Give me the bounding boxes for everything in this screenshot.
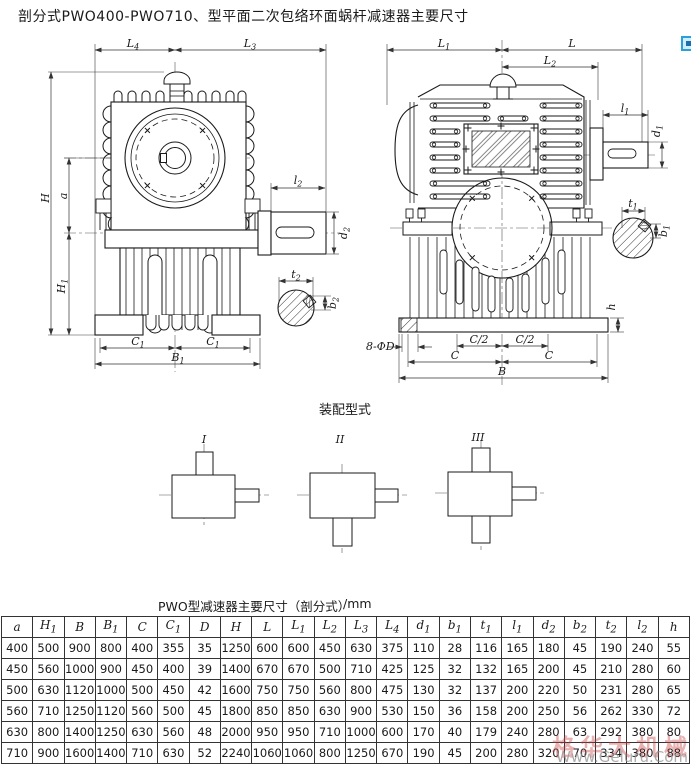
table-cell: 179 (470, 722, 501, 743)
table-cell: 500 (127, 680, 158, 701)
table-cell: 560 (158, 722, 189, 743)
table-cell: 280 (627, 680, 658, 701)
table-cell: 28 (439, 638, 470, 659)
table-cell: 710 (33, 701, 64, 722)
dim-label-L1: L1 (437, 37, 450, 52)
table-cell: 1060 (252, 743, 283, 764)
table-cell: 210 (596, 659, 627, 680)
table-cell: 400 (127, 638, 158, 659)
dim-label-C-left: C (451, 349, 460, 362)
table-row: 4005009008004003553512506006004506303751… (2, 638, 690, 659)
table-cell: 334 (596, 743, 627, 764)
table-cell: 165 (502, 659, 533, 680)
table-cell: 450 (314, 638, 345, 659)
table-cell: 1250 (220, 638, 251, 659)
table-row: 5607101250112056050045180085085063090053… (2, 701, 690, 722)
table-row: 6308001400125063056048200095095071010006… (2, 722, 690, 743)
table-cell: 137 (470, 680, 501, 701)
dim-label-a: a (57, 193, 70, 200)
table-cell: 72 (658, 701, 689, 722)
table-cell: 200 (533, 659, 564, 680)
table-cell: 560 (2, 701, 33, 722)
table-cell: 800 (314, 743, 345, 764)
column-header: H (220, 617, 251, 638)
table-cell: 560 (127, 701, 158, 722)
dim-label-b1: b1 (657, 225, 672, 237)
table-cell: 36 (439, 701, 470, 722)
table-cell: 900 (33, 743, 64, 764)
table-cell: 1060 (283, 743, 314, 764)
table-cell: 425 (377, 659, 408, 680)
table-cell: 56 (564, 701, 595, 722)
column-header: b2 (564, 617, 595, 638)
table-cell: 500 (2, 680, 33, 701)
table-cell: 630 (345, 638, 376, 659)
table-cell: 380 (627, 743, 658, 764)
table-cell: 45 (189, 701, 220, 722)
dim-label-C-right: C (545, 349, 554, 362)
table-cell: 190 (408, 743, 439, 764)
table-cell: 32 (439, 659, 470, 680)
table-cell: 450 (127, 659, 158, 680)
dim-label-t1: t1 (628, 197, 638, 212)
assembly-label-3: III (470, 431, 485, 444)
column-header: d1 (408, 617, 439, 638)
column-header: L1 (283, 617, 314, 638)
table-cell: 1000 (95, 680, 126, 701)
assembly-type-1 (172, 452, 259, 518)
dim-label-C1-right: C1 (206, 335, 220, 350)
table-header-row: aH1BB1CC1DHLL1L2L3L4d1b1t1l1d2b2t2l2h (2, 617, 690, 638)
column-header: L4 (377, 617, 408, 638)
technical-drawings: L4 L3 l2 H a H1 d2 t2 b2 C1 C1 B1 (0, 30, 691, 590)
dim-label-L2: L2 (543, 54, 556, 69)
assembly-title: 装配型式 (319, 403, 371, 418)
dim-label-C-half-right: C/2 (515, 333, 534, 346)
table-cell: 88 (658, 743, 689, 764)
dim-label-C1-left: C1 (131, 335, 145, 350)
table-cell: 45 (564, 659, 595, 680)
table-cell: 600 (377, 722, 408, 743)
table-cell: 1250 (64, 701, 95, 722)
table-cell: 375 (377, 638, 408, 659)
inspection-window (463, 123, 540, 176)
table-cell: 132 (470, 659, 501, 680)
table-cell: 850 (283, 701, 314, 722)
table-cell: 32 (439, 680, 470, 701)
table-cell: 800 (33, 722, 64, 743)
table-cell: 630 (127, 722, 158, 743)
front-output-shaft (258, 211, 326, 255)
table-cell: 63 (564, 722, 595, 743)
table-cell: 600 (283, 638, 314, 659)
dim-label-d2: d2 (337, 227, 352, 239)
table-cell: 560 (314, 680, 345, 701)
side-view-drawing: L1 L L2 l1 d1 t1 b1 8-ΦD C/2 C/2 C C B h (366, 37, 672, 385)
table-cell: 950 (283, 722, 314, 743)
table-cell: 1250 (95, 722, 126, 743)
side-split-joint (403, 209, 602, 235)
table-cell: 500 (33, 638, 64, 659)
front-foot-left (95, 315, 143, 335)
column-header: h (658, 617, 689, 638)
dim-label-H1: H1 (55, 279, 70, 295)
table-cell: 70 (564, 743, 595, 764)
table-cell: 355 (158, 638, 189, 659)
table-cell: 2240 (220, 743, 251, 764)
table-cell: 130 (408, 680, 439, 701)
table-cell: 500 (314, 659, 345, 680)
front-lower-housing (95, 248, 260, 335)
table-cell: 280 (627, 659, 658, 680)
dim-label-L: L (567, 37, 575, 50)
table-cell: 1400 (64, 722, 95, 743)
column-header: d2 (533, 617, 564, 638)
assembly-label-1: I (201, 433, 207, 446)
table-cell: 900 (345, 701, 376, 722)
table-cell: 400 (158, 659, 189, 680)
table-cell: 1000 (64, 659, 95, 680)
column-header: L (252, 617, 283, 638)
table-unit: /mm (343, 596, 372, 611)
table-cell: 1400 (95, 743, 126, 764)
table-cell: 262 (596, 701, 627, 722)
assembly-type-3 (448, 448, 536, 543)
page-title: 剖分式PWO400-PWO710、型平面二次包络环面蜗杆减速器主要尺寸 (18, 6, 469, 26)
table-cell: 850 (252, 701, 283, 722)
side-input-shaft (590, 128, 648, 180)
table-cell: 1600 (220, 680, 251, 701)
dim-label-l1: l1 (621, 102, 630, 117)
table-cell: 125 (408, 659, 439, 680)
dimension-table: aH1BB1CC1DHLL1L2L3L4d1b1t1l1d2b2t2l2h400… (1, 616, 690, 764)
table-cell: 60 (658, 659, 689, 680)
table-row: 5006301120100050045042160075075056080047… (2, 680, 690, 701)
table-cell: 630 (158, 743, 189, 764)
table-cell: 1250 (345, 743, 376, 764)
table-cell: 475 (377, 680, 408, 701)
front-hanging-fins (146, 315, 208, 330)
table-cell: 670 (283, 659, 314, 680)
shaft-section-d1 (613, 218, 653, 258)
table-cell: 170 (408, 722, 439, 743)
table-cell: 240 (502, 722, 533, 743)
table-cell: 710 (2, 743, 33, 764)
table-cell: 110 (408, 638, 439, 659)
table-cell: 330 (627, 701, 658, 722)
table-cell: 1800 (220, 701, 251, 722)
table-cell: 80 (658, 722, 689, 743)
table-cell: 950 (252, 722, 283, 743)
table-cell: 670 (252, 659, 283, 680)
column-header: B (64, 617, 95, 638)
column-header: b1 (439, 617, 470, 638)
dim-label-B1: B1 (170, 351, 184, 366)
front-foot-right (212, 315, 260, 335)
table-cell: 190 (596, 638, 627, 659)
table-cell: 2000 (220, 722, 251, 743)
assembly-type-2 (310, 473, 398, 546)
dim-label-l2: l2 (294, 174, 303, 189)
dim-label-C-half-left: C/2 (469, 333, 488, 346)
table-cell: 1400 (220, 659, 251, 680)
dim-label-L3: L3 (243, 37, 256, 52)
vent-cap (164, 72, 190, 102)
dim-label-bolt-holes: 8-ΦD (366, 340, 395, 353)
column-header: t2 (596, 617, 627, 638)
table-cell: 710 (127, 743, 158, 764)
column-header: l2 (627, 617, 658, 638)
table-cell: 292 (596, 722, 627, 743)
table-cell: 800 (95, 638, 126, 659)
dim-label-H: H (39, 193, 52, 204)
table-cell: 900 (64, 638, 95, 659)
table-cell: 560 (33, 659, 64, 680)
dim-label-t2: t2 (291, 268, 301, 283)
table-cell: 630 (314, 701, 345, 722)
front-flange-band (105, 230, 258, 248)
table-cell: 65 (658, 680, 689, 701)
table-cell: 55 (658, 638, 689, 659)
table-row: 4505601000900450400391400670670500710425… (2, 659, 690, 680)
table-cell: 40 (439, 722, 470, 743)
table-cell: 48 (189, 722, 220, 743)
worm-wheel (125, 108, 225, 208)
column-header: L2 (314, 617, 345, 638)
column-header: C1 (158, 617, 189, 638)
table-cell: 400 (2, 638, 33, 659)
table-cell: 450 (158, 680, 189, 701)
table-cell: 320 (533, 743, 564, 764)
table-cell: 750 (252, 680, 283, 701)
table-title: PWO型减速器主要尺寸（剖分式） (158, 596, 350, 615)
column-header: t1 (470, 617, 501, 638)
assembly-types: 装配型式 I II (159, 403, 544, 553)
table-cell: 900 (95, 659, 126, 680)
dim-label-d1: d1 (650, 125, 665, 137)
table-cell: 200 (502, 680, 533, 701)
dim-label-h: h (605, 303, 618, 310)
side-base-plate (399, 318, 608, 332)
catalog-page: 剖分式PWO400-PWO710、型平面二次包络环面蜗杆减速器主要尺寸 (0, 0, 691, 767)
table-cell: 200 (470, 743, 501, 764)
shaft-section-d2 (278, 290, 316, 326)
table-cell: 600 (252, 638, 283, 659)
column-header: l1 (502, 617, 533, 638)
column-header: a (2, 617, 33, 638)
table-cell: 1600 (64, 743, 95, 764)
column-header: B1 (95, 617, 126, 638)
column-header: C (127, 617, 158, 638)
table-cell: 710 (314, 722, 345, 743)
front-view-drawing: L4 L3 l2 H a H1 d2 t2 b2 C1 C1 B1 (39, 37, 352, 372)
table-cell: 750 (283, 680, 314, 701)
table-cell: 35 (189, 638, 220, 659)
table-cell: 630 (33, 680, 64, 701)
table-cell: 50 (564, 680, 595, 701)
dim-label-B: B (497, 365, 506, 378)
table-cell: 800 (345, 680, 376, 701)
table-cell: 1120 (64, 680, 95, 701)
dim-label-b2: b2 (326, 297, 341, 309)
table-cell: 231 (596, 680, 627, 701)
table-cell: 240 (627, 638, 658, 659)
column-header: H1 (33, 617, 64, 638)
table-cell: 45 (564, 638, 595, 659)
table-cell: 165 (502, 638, 533, 659)
table-cell: 1120 (95, 701, 126, 722)
table-cell: 158 (470, 701, 501, 722)
table-cell: 200 (502, 701, 533, 722)
table-cell: 280 (502, 743, 533, 764)
column-header: L3 (345, 617, 376, 638)
table-cell: 220 (533, 680, 564, 701)
table-cell: 500 (158, 701, 189, 722)
table-cell: 380 (627, 722, 658, 743)
table-cell: 280 (533, 722, 564, 743)
table-cell: 180 (533, 638, 564, 659)
table-cell: 530 (377, 701, 408, 722)
column-header: D (189, 617, 220, 638)
table-cell: 45 (439, 743, 470, 764)
table-cell: 450 (2, 659, 33, 680)
table-cell: 710 (345, 659, 376, 680)
table-cell: 52 (189, 743, 220, 764)
table-row: 7109001600140071063052224010601060800125… (2, 743, 690, 764)
dim-label-L4: L4 (126, 37, 139, 52)
table-cell: 39 (189, 659, 220, 680)
table-cell: 116 (470, 638, 501, 659)
table-cell: 250 (533, 701, 564, 722)
table-cell: 1000 (345, 722, 376, 743)
side-fin-slots (440, 250, 565, 312)
table-cell: 42 (189, 680, 220, 701)
assembly-label-2: II (335, 433, 345, 446)
table-cell: 630 (2, 722, 33, 743)
table-cell: 150 (408, 701, 439, 722)
table-cell: 670 (377, 743, 408, 764)
